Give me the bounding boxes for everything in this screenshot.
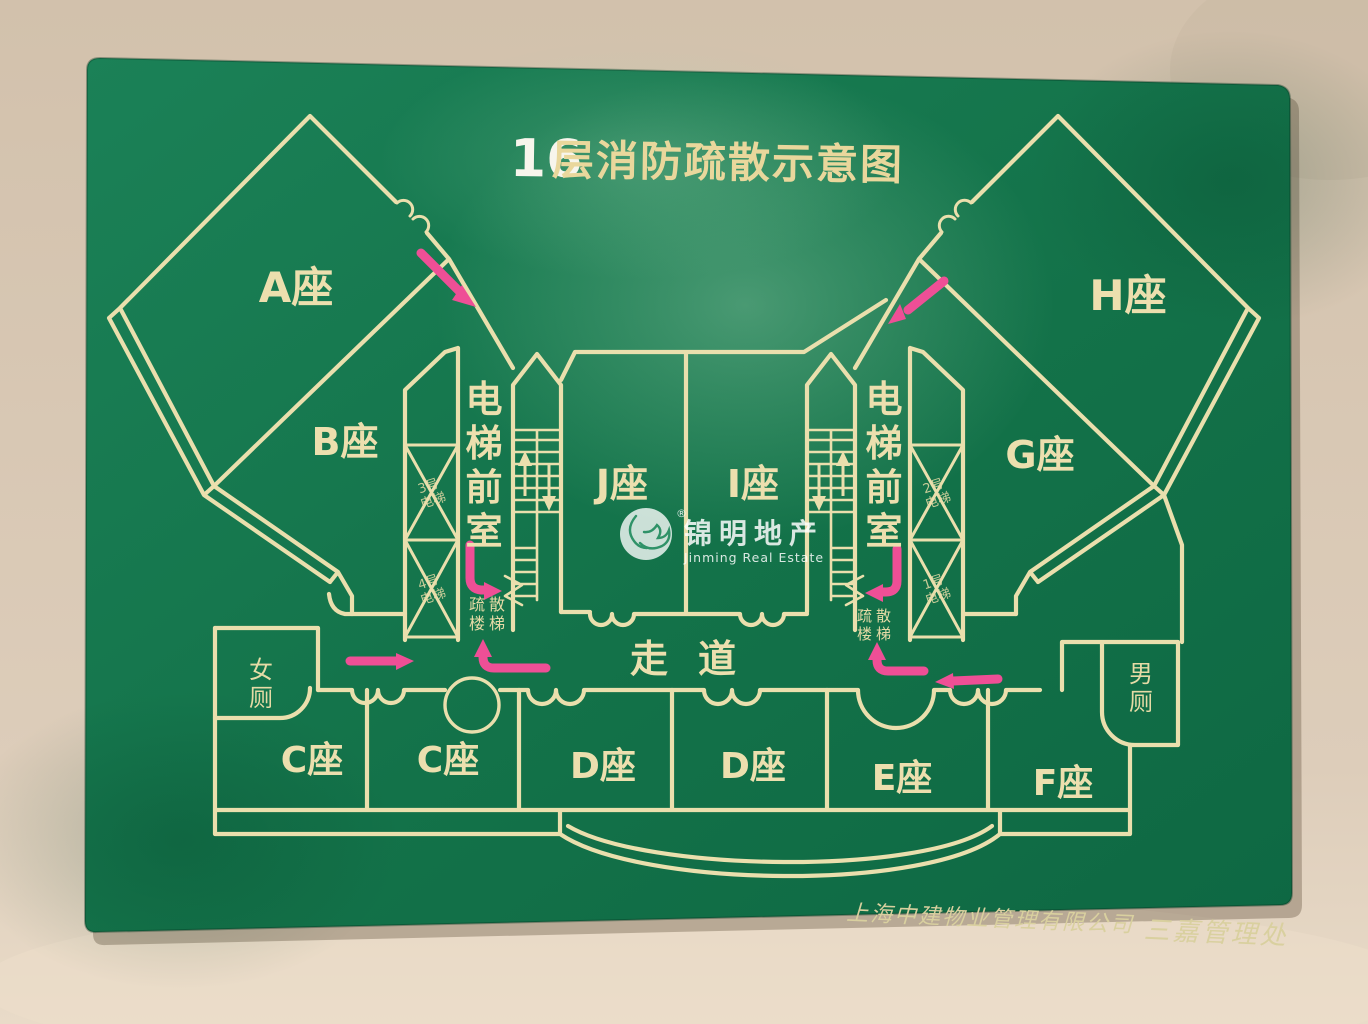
evac-stairs-left-line2: 楼梯 [469,614,509,633]
block-label-c1: C座 [281,740,343,781]
lobby-left-char-1: 电 [466,378,503,421]
lobby-right-char-4: 室 [866,510,903,553]
block-label-d1: D座 [570,746,636,787]
sign-title: 16 层消防疏散示意图 [510,129,905,194]
evac-stairs-label-left: 疏散 楼梯 [469,595,509,633]
womens-toilet-label: 女 厕 [249,656,273,712]
block-label-c2: C座 [417,740,479,781]
elevator-lobby-label-right: 电 梯 前 室 [866,378,903,553]
evac-stairs-label-right: 疏散 楼梯 [857,607,895,643]
block-label-j: J座 [593,462,648,506]
evac-stairs-left-line1: 疏散 [469,595,509,614]
block-label-g: G座 [1005,433,1074,477]
mens-toilet-label: 男 厕 [1129,660,1153,716]
elevator-lobby-label-left: 电 梯 前 室 [466,378,503,553]
block-label-d2: D座 [720,746,786,787]
footer-department: 三嘉管理处 [1143,915,1289,951]
block-label-i: I座 [727,462,779,506]
evacuation-sign-photo: 16 层消防疏散示意图 A座 B座 H座 G座 J座 I座 C座 C座 D座 D… [0,0,1368,1024]
block-label-h: H座 [1089,271,1166,320]
block-label-e: E座 [872,758,933,799]
lobby-right-char-3: 前 [866,466,903,509]
lobby-left-char-2: 梯 [466,422,503,465]
brand-name-en: Jinming Real Estate [683,550,824,565]
lobby-left-char-3: 前 [466,466,503,509]
block-label-b: B座 [312,420,379,464]
brand-name-cn: 锦明地产 [684,517,824,550]
toilet-men-char-1: 男 [1129,660,1153,688]
lobby-right-char-2: 梯 [866,422,903,465]
toilet-men-char-2: 厕 [1129,688,1153,716]
lobby-right-char-1: 电 [866,378,903,421]
corridor-label: 走道 [630,637,766,681]
title-text: 层消防疏散示意图 [552,136,905,190]
block-label-a: A座 [259,263,334,312]
scene: 16 层消防疏散示意图 A座 B座 H座 G座 J座 I座 C座 C座 D座 D… [0,0,1368,1024]
evac-stairs-right-line2: 楼梯 [857,625,895,643]
block-label-f: F座 [1033,763,1094,804]
lobby-left-char-4: 室 [466,510,503,553]
toilet-women-char-1: 女 [249,656,273,684]
watermark-logo-icon [620,508,672,560]
toilet-women-char-2: 厕 [249,684,273,712]
evac-stairs-right-line1: 疏散 [857,607,895,625]
